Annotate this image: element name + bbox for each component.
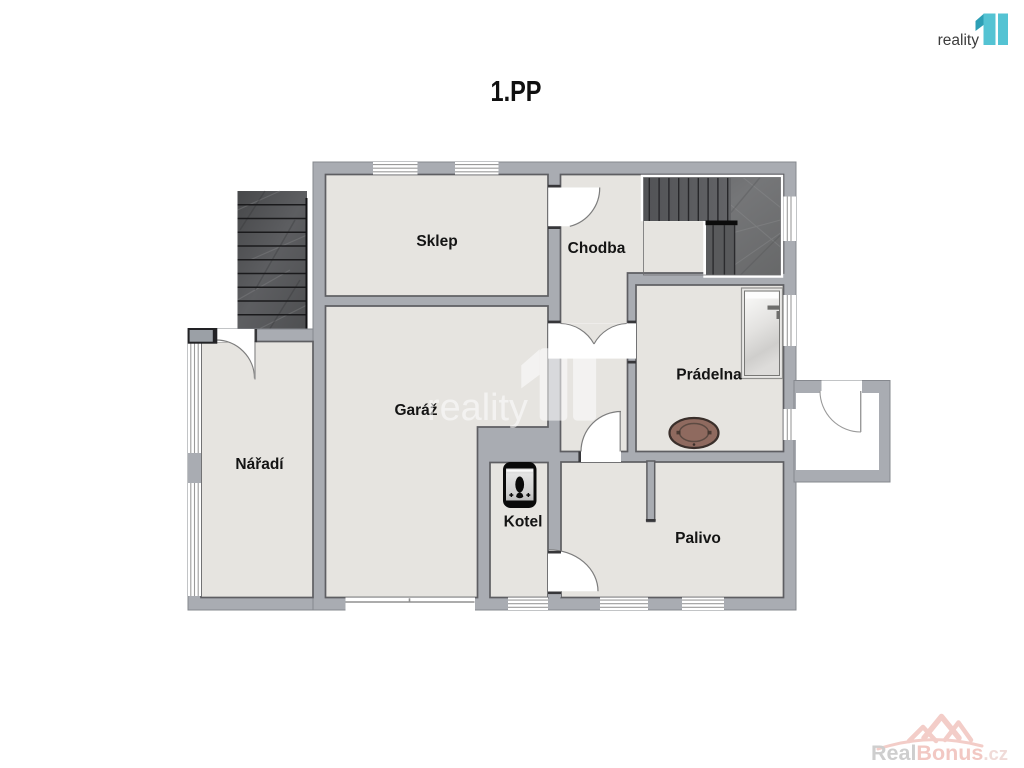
svg-text:Sklep: Sklep: [416, 233, 457, 250]
svg-text:Nářadí: Nářadí: [235, 456, 284, 473]
svg-text:reality: reality: [427, 387, 528, 429]
svg-text:Prádelna: Prádelna: [676, 367, 742, 384]
svg-text:reality: reality: [938, 32, 980, 49]
svg-text:Palivo: Palivo: [675, 530, 721, 547]
svg-text:Kotel: Kotel: [504, 514, 543, 531]
svg-text:1.PP: 1.PP: [491, 76, 542, 108]
svg-text:RealBonus.cz: RealBonus.cz: [871, 741, 1008, 765]
svg-text:Chodba: Chodba: [568, 240, 626, 257]
